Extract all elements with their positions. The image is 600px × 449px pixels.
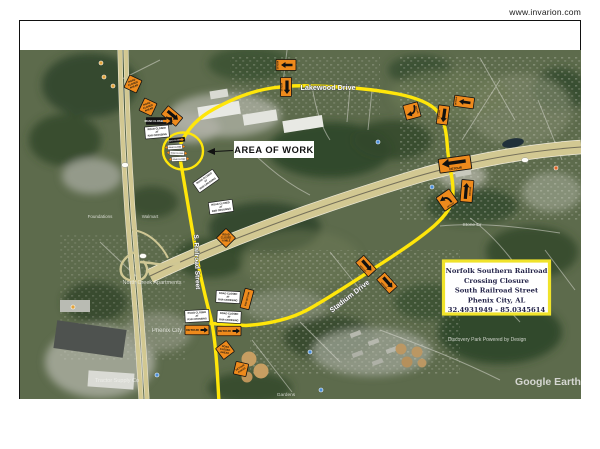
- info-line-2: Crossing Closure: [464, 277, 530, 285]
- label-walmart: Walmart: [142, 214, 159, 219]
- label-lakewood-drive: Lakewood Drive: [300, 83, 355, 92]
- area-of-work-label: AREA OF WORK: [234, 145, 314, 155]
- road-closed-arrow-sign-nw: [145, 117, 172, 125]
- satellite-imagery: North Creek Apartments Phenix City Tract…: [20, 50, 581, 399]
- label-foundations: Foundations: [88, 214, 114, 219]
- detour-left-sign-lakewood-e: [453, 95, 474, 109]
- detour-curve-sign-lakewood-e: [403, 102, 421, 120]
- road-closed-rxr-sign-rr5: [185, 309, 210, 322]
- detour-up-sign-highway: [460, 180, 474, 203]
- info-line-1: Norfolk Southern Railroad: [446, 267, 548, 275]
- invarion-website-link: www.invarion.com: [509, 7, 581, 17]
- info-line-4: Phenix City, AL: [468, 296, 526, 304]
- map-attribution: Discovery Park Powered by Design: [448, 337, 527, 343]
- road-closed-rxr-sign-nw: [145, 125, 170, 139]
- work-zone-barricade-1: [165, 144, 186, 150]
- road-closed-rxr-sign-rr4: [217, 310, 242, 323]
- label-north-creek-apartments: North Creek Apartments: [123, 280, 182, 286]
- label-stone-dr: Stone Dr: [463, 222, 482, 228]
- detour-down-sign-lakewood-e: [436, 105, 450, 125]
- label-gardens: Gardens: [277, 392, 296, 398]
- info-line-5: 32.4931949 - 85.0345614: [448, 306, 546, 314]
- detour-down-sign-lakewood-w: [281, 78, 292, 97]
- work-zone-barricade-2: [167, 150, 187, 155]
- info-line-3: South Railroad Street: [455, 287, 539, 295]
- project-info-box: Norfolk Southern Railroad Crossing Closu…: [444, 261, 550, 314]
- detour-left-sign-lakewood-w: [276, 60, 296, 71]
- detour-right-sign-rr-east: [217, 326, 241, 336]
- label-phenix-city: Phenix City: [152, 328, 182, 334]
- work-zone-barricade-3: [169, 156, 189, 161]
- label-tractor-supply: Tractor Supply Co: [95, 378, 139, 384]
- satellite-map: DETOUR DETOUR DETOUR DETOUR DETOUR: [20, 50, 581, 399]
- google-earth-watermark: Google Earth: [515, 376, 581, 388]
- road-closed-rxr-sign-rr3: [216, 290, 241, 303]
- detour-right-sign-rr-west: [185, 325, 209, 335]
